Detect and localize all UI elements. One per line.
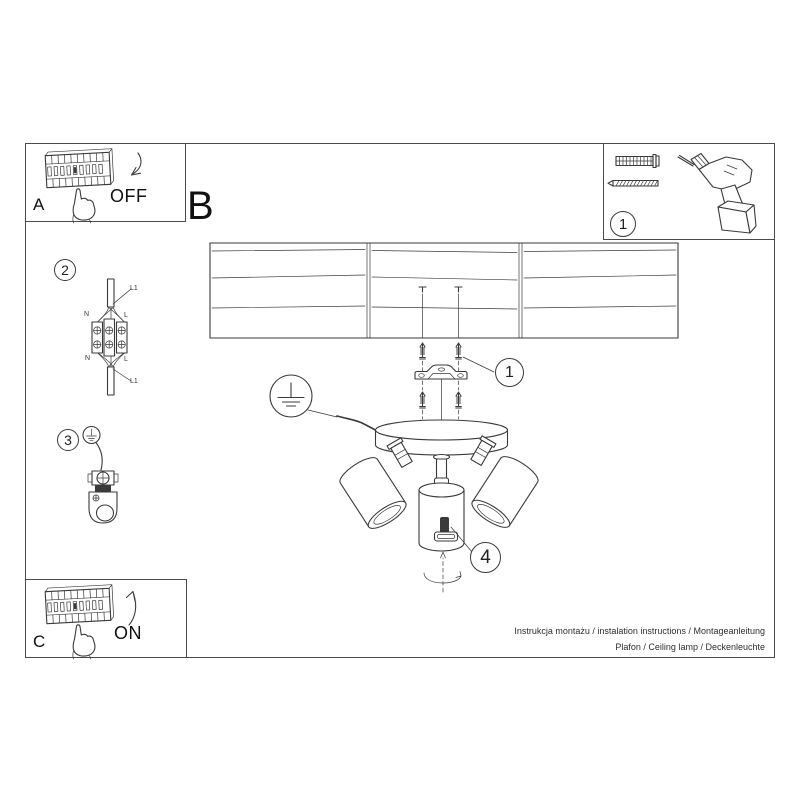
footer-line-2: Plafon / Ceiling lamp / Deckenleuchte — [514, 639, 765, 655]
wall-anchor-icon — [616, 155, 659, 168]
step-1-tools-badge: 1 — [610, 211, 636, 237]
spotlight-left — [336, 453, 409, 533]
spotlight-center — [419, 483, 464, 551]
drill-mark-icons — [419, 287, 462, 338]
rotation-arrow-icon — [424, 552, 461, 592]
panel-c-power-on: C ON — [25, 579, 187, 658]
bracket-pointer-line — [463, 357, 494, 372]
wires — [98, 307, 125, 367]
cable-bottom — [108, 367, 115, 395]
breaker-off-drawing — [26, 144, 187, 223]
instruction-sheet: B — [0, 0, 800, 800]
terminal-block-icon — [92, 319, 127, 356]
panel-c-state-label: ON — [114, 623, 142, 644]
earth-wire — [337, 416, 377, 431]
ground-symbol-icon — [270, 375, 312, 417]
gu10-socket — [440, 517, 449, 533]
footer-captions: Instrukcja montażu / instalation instruc… — [514, 623, 765, 655]
lamp-holder-icon — [88, 471, 118, 523]
step-2-badge: 2 — [54, 259, 76, 281]
arrow-up-icon — [127, 592, 136, 626]
ground-wire — [96, 443, 102, 471]
panel-c-letter: C — [33, 632, 45, 652]
panel-a-letter: A — [33, 195, 44, 215]
panel-a-power-off: A OFF — [25, 143, 186, 222]
hand-press-icon — [73, 189, 95, 223]
spot-stem-center — [434, 455, 450, 488]
circuit-breaker-icon — [45, 149, 114, 188]
ceiling-panels — [210, 243, 678, 338]
step-b-label: B — [187, 186, 214, 226]
ground-pointer-line — [308, 410, 337, 417]
arrow-down-icon — [132, 153, 142, 175]
ground-connection-drawing — [75, 420, 135, 535]
panel-a-state-label: OFF — [110, 186, 148, 207]
main-installation-drawing — [200, 240, 700, 600]
l1-pointer-lines — [113, 289, 131, 381]
cable-top — [108, 279, 115, 307]
circuit-breaker-icon — [45, 585, 114, 624]
footer-line-1: Instrukcja montażu / instalation instruc… — [514, 623, 765, 639]
breaker-on-drawing — [26, 580, 188, 659]
step-4-adjust-badge: 4 — [470, 542, 501, 573]
terminal-block-diagram — [80, 275, 150, 405]
ground-symbol-small-icon — [83, 427, 100, 444]
hand-press-icon — [73, 625, 95, 659]
step-3-badge: 3 — [57, 429, 79, 451]
drill-icon — [678, 154, 756, 234]
step-1-bracket-badge: 1 — [495, 358, 524, 387]
screw-icon — [608, 181, 658, 187]
